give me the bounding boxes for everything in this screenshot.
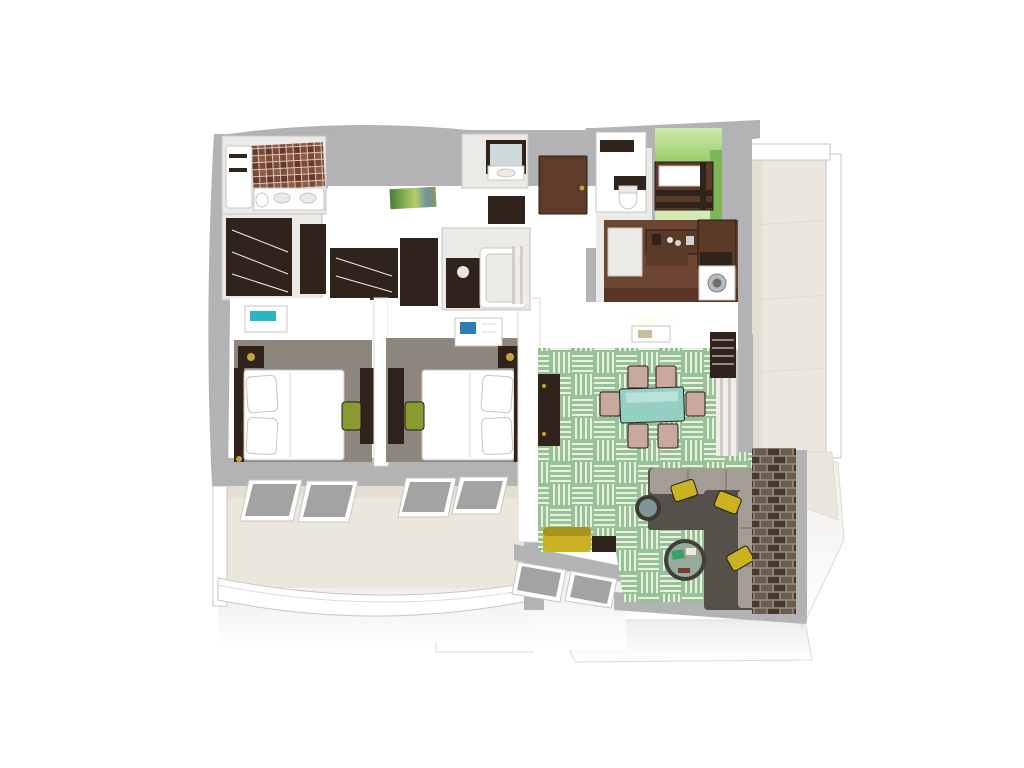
olive-desk-chair xyxy=(342,402,361,430)
dining-chair xyxy=(658,424,678,448)
towel-rack-icon xyxy=(229,168,247,172)
dining-chair xyxy=(656,366,676,388)
dark-vanity xyxy=(446,258,480,308)
washer-door-icon xyxy=(713,279,722,288)
sink-icon xyxy=(457,266,469,278)
water-closet xyxy=(596,132,646,212)
sconce-icon xyxy=(236,456,242,462)
vanity-niche xyxy=(462,134,528,188)
balcony-east-floor-shade xyxy=(752,160,762,454)
guest-bathroom xyxy=(400,228,530,310)
pillow-icon xyxy=(481,417,513,455)
pillow-icon xyxy=(246,417,278,455)
desk xyxy=(388,368,404,444)
toilet-tank xyxy=(619,186,637,193)
lamp-icon xyxy=(506,353,514,361)
floor-plan-render xyxy=(0,0,1024,768)
towel-rack-icon xyxy=(229,154,247,158)
shower-curtain xyxy=(512,246,528,304)
side-table-round xyxy=(635,495,661,521)
kettle-icon xyxy=(686,236,694,245)
olive-desk-chair xyxy=(405,402,424,430)
sink-icon xyxy=(497,169,515,177)
window-glass xyxy=(456,481,503,509)
window-glass xyxy=(303,485,353,517)
cup-icon xyxy=(667,237,673,243)
window-glass xyxy=(245,484,297,516)
window-glass xyxy=(402,482,451,512)
knob-icon xyxy=(542,384,546,388)
book-icon xyxy=(672,549,685,560)
pillow-icon xyxy=(246,375,278,413)
hall-art xyxy=(638,330,652,338)
kitchenette xyxy=(604,220,738,302)
west-wardrobe xyxy=(400,238,438,306)
inner-hall xyxy=(530,302,738,348)
dining-chair xyxy=(686,392,705,416)
rainbow-runner-rug xyxy=(390,187,437,209)
mosaic-tile-floor xyxy=(251,142,325,190)
door-handle-icon xyxy=(580,186,585,191)
master-bathroom xyxy=(222,136,326,214)
coffee-maker-icon xyxy=(652,234,661,245)
bunk-mattress xyxy=(659,166,705,186)
cream-cabinet xyxy=(608,228,642,276)
microwave-icon xyxy=(700,252,732,265)
sink-icon xyxy=(274,193,290,203)
mirror-glass xyxy=(490,144,522,168)
living-east-wall xyxy=(736,334,753,460)
balcony-east-railing xyxy=(826,154,841,458)
dining-chair xyxy=(600,392,620,416)
bedroom-divider-wall xyxy=(374,298,388,466)
balcony-east-floor xyxy=(752,160,828,454)
table-glass-highlight xyxy=(626,391,678,403)
brick-accent-wall xyxy=(752,448,796,614)
dining-chair xyxy=(628,366,648,388)
entry-door xyxy=(539,156,587,214)
chaise-side-table xyxy=(592,536,616,552)
bedroom-2 xyxy=(386,298,528,462)
toilet-icon xyxy=(256,193,268,207)
coffee-table-round xyxy=(664,539,706,581)
tray-icon xyxy=(678,568,690,573)
balcony-east-top-rail xyxy=(748,144,830,160)
bunk-room xyxy=(655,128,722,232)
cup-icon xyxy=(675,240,681,246)
bunk-ladder xyxy=(700,162,706,210)
pillow-icon xyxy=(481,375,513,413)
dark-closet-west xyxy=(226,218,292,296)
wc-shelf xyxy=(600,140,634,152)
dark-closet-hall xyxy=(330,248,398,300)
wall-art-blue xyxy=(460,322,476,334)
slat-wardrobe xyxy=(710,332,736,378)
knob-icon xyxy=(542,432,546,436)
book-icon xyxy=(686,548,696,555)
entry-cabinet xyxy=(488,196,525,224)
teal-bench-top xyxy=(250,311,276,321)
dining-chair xyxy=(628,424,648,448)
bedroom2-east-wall xyxy=(518,298,540,542)
bed-headboard xyxy=(234,368,244,462)
living-east-wall-low xyxy=(796,450,807,622)
dark-closet-mid xyxy=(300,224,326,294)
counter-return xyxy=(646,250,688,266)
lamp-icon xyxy=(247,353,255,361)
bedroom-1 xyxy=(230,298,376,462)
sink-icon xyxy=(300,193,316,203)
media-console xyxy=(538,374,560,446)
